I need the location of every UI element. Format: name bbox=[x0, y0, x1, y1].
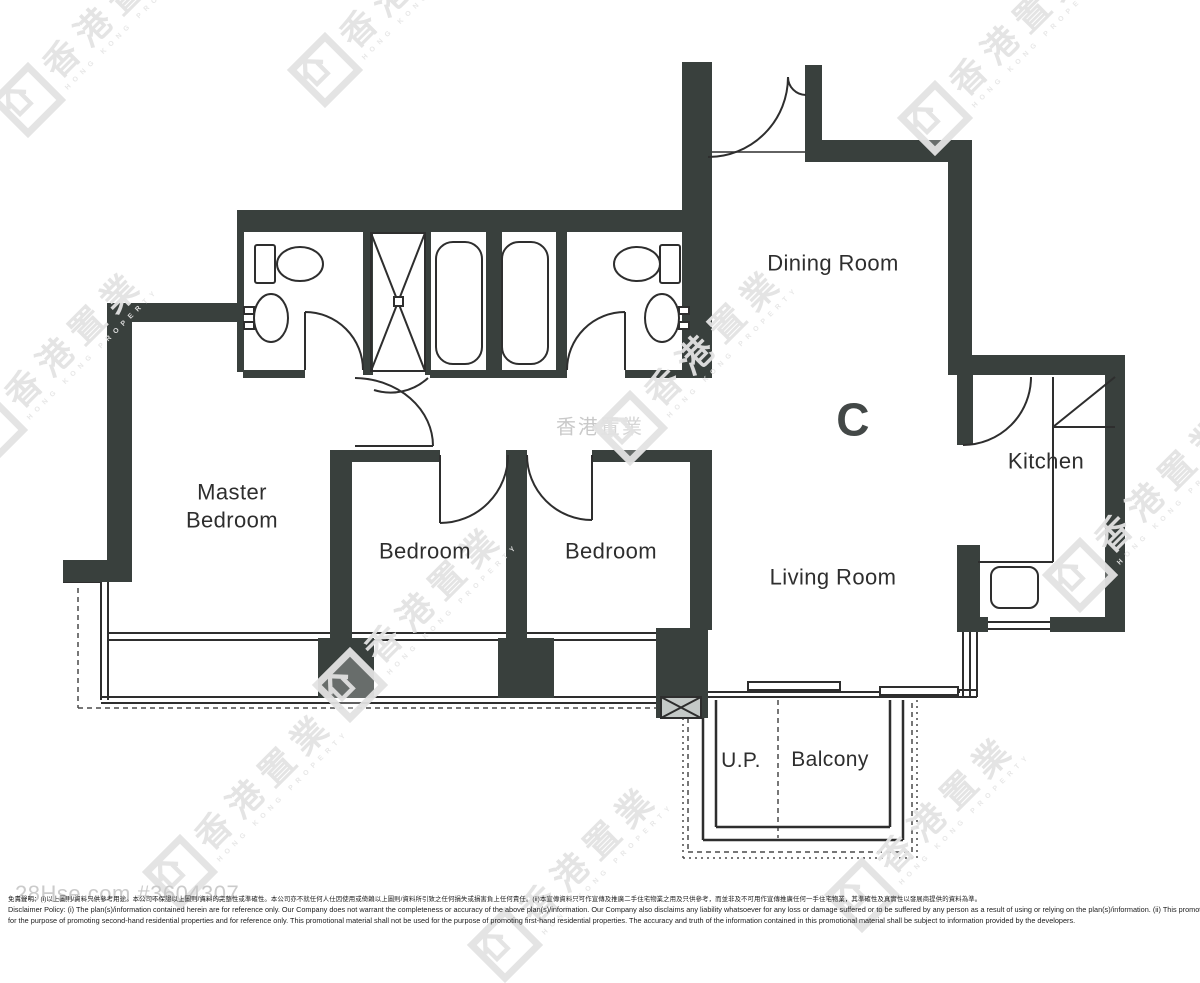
room-label-bedroom-1: Bedroom bbox=[379, 537, 471, 565]
room-label-unit-letter: C bbox=[836, 391, 870, 449]
bathroom2-door-arc bbox=[567, 312, 625, 370]
dashed-outlines bbox=[78, 588, 917, 858]
room-label-living-room: Living Room bbox=[770, 563, 897, 591]
shower-icon bbox=[371, 233, 425, 371]
toilet-icon-2 bbox=[614, 245, 680, 283]
entrance-door-arc bbox=[708, 77, 806, 157]
room-label-bedroom-2: Bedroom bbox=[565, 537, 657, 565]
ensuite-door-arc bbox=[305, 312, 363, 370]
balcony-sliding-doors bbox=[748, 682, 958, 695]
window-lines bbox=[63, 582, 1050, 703]
floor-plan-canvas: 香港置業 香港置業 HONG KONG PROPERTY 香港置業 HONG K… bbox=[0, 0, 1200, 934]
kitchen-counter bbox=[978, 377, 1115, 608]
walls bbox=[63, 62, 1125, 718]
kitchen-door-arc bbox=[963, 377, 1031, 445]
toilet-icon bbox=[255, 245, 323, 283]
room-label-balcony: Balcony bbox=[791, 747, 869, 773]
room-label-master-bedroom: Master Bedroom bbox=[186, 479, 278, 534]
disclaimer-english-line1: Disclaimer Policy: (i) The plan(s)/infor… bbox=[8, 905, 1200, 914]
bedroom1-door-arc bbox=[440, 455, 508, 523]
ac-platform-icon bbox=[661, 697, 701, 718]
hall-door-arc bbox=[355, 378, 433, 446]
bedroom2-door-arc bbox=[527, 455, 592, 520]
room-label-kitchen: Kitchen bbox=[1008, 447, 1084, 475]
room-label-utility-platform: U.P. bbox=[721, 748, 761, 774]
disclaimer-chinese: 免責聲明：(i)以上圖則/資料只供參考用途。本公司不保證以上圖則/資料的完整性或… bbox=[8, 894, 981, 903]
room-label-dining-room: Dining Room bbox=[767, 249, 899, 277]
disclaimer-english-line2: for the purpose of promoting second-hand… bbox=[8, 916, 1075, 925]
sink-icon bbox=[244, 294, 288, 342]
